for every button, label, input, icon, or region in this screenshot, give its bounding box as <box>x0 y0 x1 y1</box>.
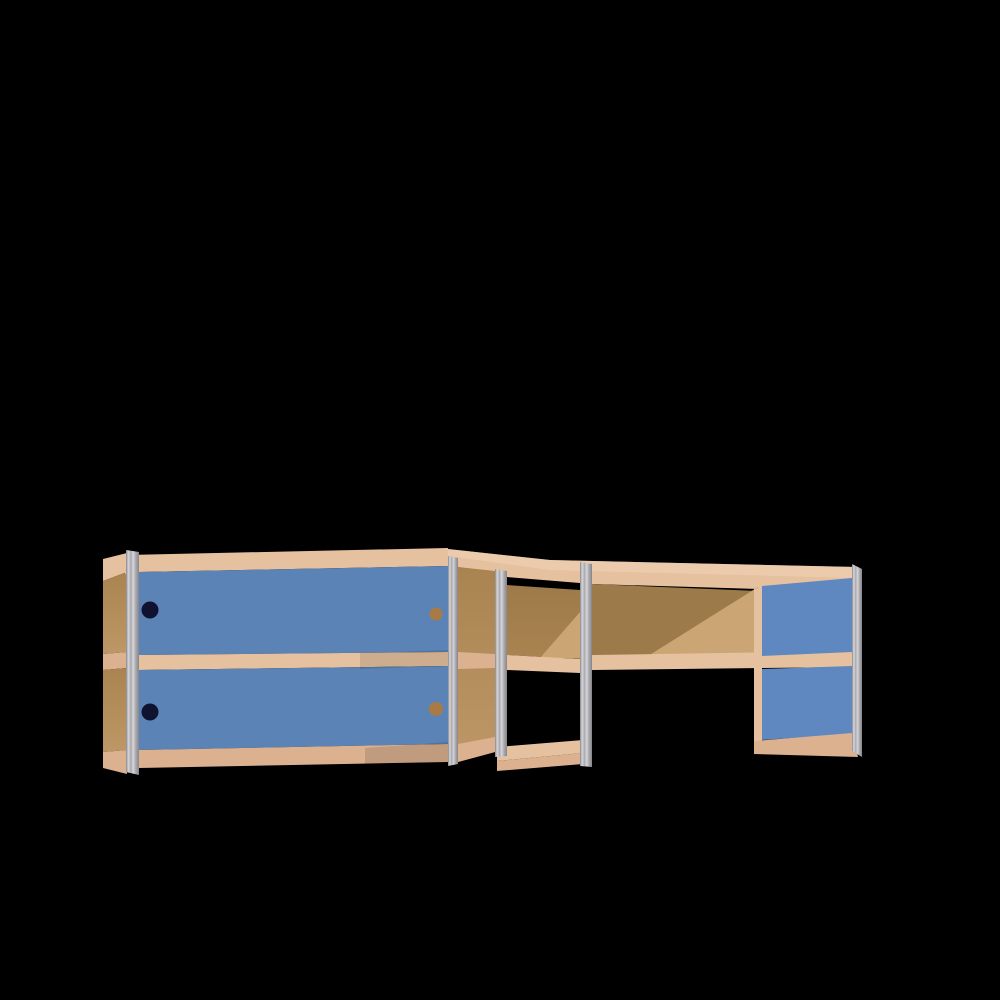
alu-profile-corner-right <box>580 562 592 767</box>
right-wing-divider-edge <box>754 588 762 749</box>
alu-profile-corner-left <box>448 556 458 766</box>
render-viewport[interactable] <box>0 0 1000 1000</box>
lower-door-handle-navy[interactable] <box>142 704 159 721</box>
right-end-mid-shelf-edge <box>458 652 495 669</box>
scene-background <box>0 0 1000 1000</box>
upper-door-handle-navy[interactable] <box>142 602 159 619</box>
furniture-render-canvas <box>0 0 1000 1000</box>
left-end-panel-lower <box>103 668 127 752</box>
alu-profile-right-end <box>852 564 862 757</box>
alu-profile-left <box>126 550 139 775</box>
right-wing-upper-blue-panel[interactable] <box>762 578 852 656</box>
left-cabinet-upper-sliding-door[interactable] <box>139 566 448 655</box>
right-wing-lower-blue-panel[interactable] <box>762 666 852 740</box>
alu-profile-corner-mid <box>495 569 507 757</box>
mid-fascia-shadow <box>360 650 448 669</box>
left-cabinet-lower-sliding-door[interactable] <box>139 666 448 750</box>
upper-door-handle-bronze[interactable] <box>430 608 443 621</box>
left-end-panel-upper <box>103 572 127 654</box>
left-end-mid-shelf-edge <box>103 652 127 670</box>
lower-door-handle-bronze[interactable] <box>429 702 443 716</box>
